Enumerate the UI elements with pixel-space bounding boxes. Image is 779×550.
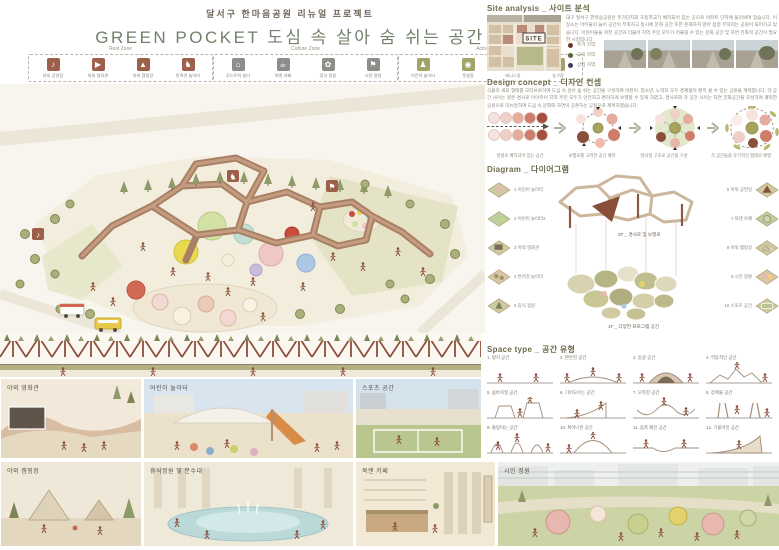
iso-thumbnail-icon	[487, 210, 511, 228]
legend-item: ♪야외 공연장	[36, 58, 70, 79]
space-type-cell: 6. 기어오르는 공간	[560, 390, 630, 423]
legend-item: ◉풋살장	[451, 58, 485, 79]
legend-item: ☕북앤 카페	[266, 58, 300, 79]
diagram-item: 7 북앤 카페	[704, 205, 779, 232]
site-analysis-text: 대구 달서구 한마음공원은 주거단지와 초등학교가 배치되어 있는 곳으로 아파…	[566, 14, 777, 43]
arrow-right-icon	[706, 121, 721, 135]
legend-item: ▶야외 영화관	[81, 58, 115, 79]
site-legend: 주거 지역 교육 지역 상업 지역	[568, 42, 595, 72]
site-photo	[692, 40, 734, 68]
render-playground: 어린이 놀이터	[144, 379, 353, 458]
presentation-board: 달서구 한마음공원 리뉴얼 프로젝트 GREEN POCKET 도심 속 살아 …	[0, 0, 779, 550]
render-camping: 야외 캠핑장	[1, 462, 141, 546]
commercial-dot	[568, 63, 573, 68]
page-title: GREEN POCKET 도심 속 살아 숨 쉬는 공간	[90, 23, 490, 48]
legend-item: ♟어린이 놀이터	[406, 58, 440, 79]
zone-group-rest: Rest Zone ♪야외 공연장 ▶야외 영화관 ▲야외 캠핑장 ♞반려견 놀…	[28, 46, 213, 82]
zone-box: ♪야외 공연장 ▶야외 영화관 ▲야외 캠핑장 ♞반려견 놀이터	[28, 54, 213, 82]
diagram-item: 3 야외 영화관	[487, 234, 553, 261]
render-book-cafe: 북앤 카페	[356, 462, 495, 546]
site-photo	[736, 40, 778, 68]
garden-marker-icon: ⚑	[326, 180, 338, 192]
step-caption: 방사형 구조로 공간을 구성	[631, 153, 697, 159]
cafe-icon: ☕	[277, 58, 290, 71]
step-caption: 각 공간들을 유기적인 형태로 배열	[703, 153, 779, 159]
arrow-right-icon	[628, 121, 643, 135]
render-caption: 어린이 놀이터	[150, 383, 188, 392]
floor1-label: 1F _ 다양한 프로그램 공간	[608, 323, 660, 330]
render-rest-garden-fountain: 휴식정원 및 분수대	[144, 462, 353, 546]
residential-dot	[568, 43, 573, 48]
iso-thumbnail-icon	[487, 268, 511, 286]
space-type-cell: 11. 움푹 패인 공간	[633, 425, 703, 458]
exploded-axonometric: 2F _ 경사로 및 보행로 1F _ 다양한 프로그램 공간	[546, 172, 706, 334]
legend-item: ⌂푸드트럭 쉼터	[221, 58, 255, 79]
diagram-right-items: 6 야외 공연장 7 북앤 카페 8 야외 캠핑장 9 시민 정원 10 스포츠…	[704, 176, 779, 321]
concept-step-captions: 일렬로 배치되어 있는 공간 보행로를 고려한 공간 배치 방사형 구조로 공간…	[487, 153, 779, 159]
site-photos	[604, 40, 778, 68]
render-caption: 시민 정원	[504, 466, 530, 475]
diagram-item: 5 휴식 정원	[487, 292, 553, 319]
concept-step-3	[648, 106, 702, 150]
iso-thumbnail-icon	[755, 297, 779, 315]
site-photo	[604, 40, 646, 68]
zone-name: Rest Zone	[28, 46, 213, 52]
dog-park-icon: ♞	[182, 58, 195, 71]
zone-group-culture: Culture Zone ⌂푸드트럭 쉼터 ☕북앤 카페 ✿휴식 정원 ⚑시민 …	[213, 46, 398, 82]
svg-text:⚑: ⚑	[328, 183, 335, 192]
legend-item: ▲야외 캠핑장	[126, 58, 160, 79]
iso-thumbnail-icon	[487, 297, 511, 315]
render-caption: 야외 영화관	[7, 383, 39, 392]
citizen-garden-icon: ⚑	[367, 58, 380, 71]
space-type-cell: 8. 장애물 공간	[706, 390, 776, 423]
space-type-cell: 12. 기울어진 공간	[706, 425, 776, 458]
space-type-cell: 1. 평지 공간	[487, 355, 557, 388]
site-map: SITE	[487, 15, 561, 71]
diagram-item: 8 야외 캠핑장	[704, 234, 779, 261]
diagram-item: 2 어린이 놀이터2	[487, 205, 553, 232]
iso-thumbnail-icon	[755, 210, 779, 228]
outdoor-stage-icon: ♪	[47, 58, 60, 71]
iso-thumbnail-icon	[487, 239, 511, 257]
diagram-item: 9 시민 정원	[704, 263, 779, 290]
concept-step-4	[725, 106, 779, 150]
legend-item: ⚑시민 정원	[356, 58, 390, 79]
section-elevation	[0, 333, 481, 377]
project-subtitle: 달서구 한마음공원 리뉴얼 프로젝트	[90, 7, 490, 20]
space-type-cell: 2. 완만한 공간	[560, 355, 630, 388]
space-type-header: Space type _ 공간 유형	[487, 344, 575, 355]
site-label: SITE	[525, 37, 542, 43]
legend-row-commercial: 상업 지역	[568, 62, 595, 68]
svg-text:♪: ♪	[36, 231, 40, 240]
outdoor-cinema-icon: ▶	[92, 58, 105, 71]
futsal-icon: ◉	[462, 58, 475, 71]
education-dot	[568, 53, 573, 58]
masterplan-illustration: ♞ ♪ ⚑	[0, 84, 485, 333]
legend-row-residential: 주거 지역	[568, 42, 595, 48]
iso-thumbnail-icon	[487, 181, 511, 199]
title-block: 달서구 한마음공원 리뉴얼 프로젝트 GREEN POCKET 도심 속 살아 …	[90, 7, 490, 48]
legend-item: ♞반려견 놀이터	[171, 58, 205, 79]
camping-icon: ▲	[137, 58, 150, 71]
render-sports-space: 스포츠 공간	[356, 379, 481, 458]
zone-name: Culture Zone	[213, 46, 398, 52]
diagram-item: 10 스포츠 공간	[704, 292, 779, 319]
stage-marker-icon: ♪	[32, 228, 44, 240]
legend-row-education: 교육 지역	[568, 52, 595, 58]
diagram-left-items: 1 어린이 놀이터 2 어린이 놀이터2 3 야외 영화관 4 반려견 놀이터 …	[487, 176, 553, 321]
site-photo	[648, 40, 690, 68]
render-caption: 야외 캠핑장	[7, 466, 39, 475]
space-type-cell: 4. 역동적인 공간	[706, 355, 776, 388]
step-caption: 일렬로 배치되어 있는 공간	[487, 153, 553, 159]
space-type-cell: 7. 오목한 공간	[633, 390, 703, 423]
floor2-label: 2F _ 경사로 및 보행로	[618, 231, 661, 238]
render-caption: 휴식정원 및 분수대	[150, 466, 203, 475]
concept-step-1	[487, 108, 549, 148]
concept-steps	[487, 106, 779, 150]
render-outdoor-cinema: 야외 영화관	[1, 379, 141, 458]
site-analysis-header: Site analysis _ 사이트 분석	[487, 3, 590, 14]
concept-step-2	[572, 107, 624, 149]
iso-thumbnail-icon	[755, 181, 779, 199]
diagram-item: 6 야외 공연장	[704, 176, 779, 203]
zone-legend: Rest Zone ♪야외 공연장 ▶야외 영화관 ▲야외 캠핑장 ♞반려견 놀…	[28, 46, 480, 82]
space-type-cell: 5. 숨바꼭질 공간	[487, 390, 557, 423]
zone-box: ⌂푸드트럭 쉼터 ☕북앤 카페 ✿휴식 정원 ⚑시민 정원	[213, 54, 398, 82]
rest-garden-icon: ✿	[322, 58, 335, 71]
render-caption: 북앤 카페	[362, 466, 388, 475]
playground-icon: ♟	[417, 58, 430, 71]
svg-text:♞: ♞	[229, 173, 236, 182]
arrow-right-icon	[553, 121, 568, 135]
iso-thumbnail-icon	[755, 268, 779, 286]
diagram-item: 1 어린이 놀이터	[487, 176, 553, 203]
space-type-grid: 1. 평지 공간 2. 완만한 공간 3. 동굴 공간 4. 역동적인 공간 5…	[487, 355, 776, 458]
iso-thumbnail-icon	[755, 239, 779, 257]
space-type-cell: 10. 튀어나온 공간	[560, 425, 630, 458]
render-citizen-garden: 시민 정원	[498, 462, 779, 546]
food-truck-icon: ⌂	[232, 58, 245, 71]
space-type-cell: 9. 출렁이는 공간	[487, 425, 557, 458]
space-type-cell: 3. 동굴 공간	[633, 355, 703, 388]
render-caption: 스포츠 공간	[362, 383, 394, 392]
diagram-item: 4 반려견 놀이터	[487, 263, 553, 290]
dog-marker-icon: ♞	[227, 170, 239, 182]
step-caption: 보행로를 고려한 공간 배치	[559, 153, 625, 159]
legend-item: ✿휴식 정원	[311, 58, 345, 79]
